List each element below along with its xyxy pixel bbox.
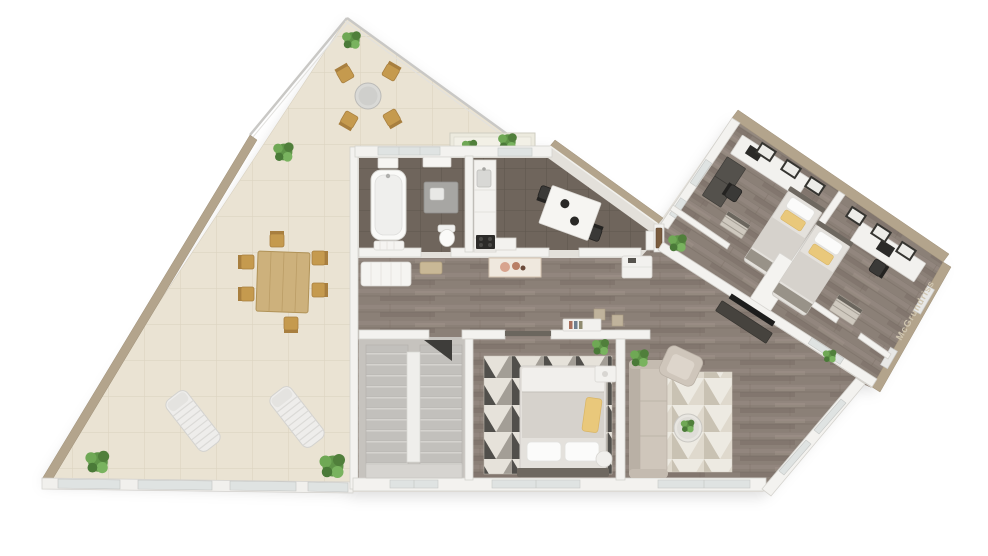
stair-landing xyxy=(366,464,462,478)
wall-hall-south-b xyxy=(462,330,505,339)
wall-pillar-2 xyxy=(612,315,623,326)
towel-radiator xyxy=(374,241,404,250)
boiler xyxy=(378,158,398,168)
pillow xyxy=(527,442,561,461)
wall-pillar-1 xyxy=(594,309,605,320)
nightstand xyxy=(595,366,616,382)
bathroom-window xyxy=(378,147,440,155)
staircase xyxy=(366,340,462,478)
wall-west xyxy=(350,147,358,489)
wall-bath-kitchen-divider xyxy=(465,156,473,252)
outdoor-dining-chair xyxy=(312,283,328,297)
entrance-shoe-cabinet xyxy=(622,256,652,278)
bistro-table-top xyxy=(359,87,378,106)
bedside-stool xyxy=(596,451,612,467)
living-room-plant xyxy=(630,349,649,367)
wall-bedroom-living-divider xyxy=(616,339,625,480)
wall-stair-bedroom-divider xyxy=(465,339,473,480)
headboard xyxy=(517,468,609,477)
wall-kitchen-east-stub xyxy=(646,231,654,250)
terrace-plant-bottom-right xyxy=(320,454,346,478)
terrace-bottom-window-1 xyxy=(58,479,120,489)
balcony-door xyxy=(498,148,532,156)
hallway-sideboard xyxy=(563,319,601,331)
wall-hall-south-a xyxy=(359,330,429,339)
outdoor-dining-chair xyxy=(238,287,254,301)
hallway-basket xyxy=(420,262,442,274)
wing-hallway-plant xyxy=(823,350,837,363)
hanging-plant-apex xyxy=(342,31,361,49)
outdoor-dining-chair xyxy=(312,251,328,265)
terrace-bottom-window-4 xyxy=(308,482,348,492)
floor-plan-svg: McGrundriss xyxy=(0,0,988,556)
terrace-plant-bottom-left xyxy=(85,451,109,473)
outdoor-dining-chair xyxy=(284,317,298,333)
stair-flight-right xyxy=(420,345,462,465)
terrace-bottom-window-2 xyxy=(138,480,212,490)
hallway-artwork xyxy=(489,258,541,277)
terrace-bottom-window-3 xyxy=(230,481,296,491)
coffee-table-plant xyxy=(681,420,695,433)
coffee-table xyxy=(674,414,702,442)
floor-plan-canvas: McGrundriss xyxy=(0,0,988,556)
hallway-radiator xyxy=(361,262,411,286)
stair-stringer-wall xyxy=(407,352,420,462)
cooktop xyxy=(476,235,495,249)
vanity-mirror-shelf xyxy=(423,157,451,167)
terrace-plant-left-rail xyxy=(273,142,293,161)
kitchen-sink xyxy=(477,167,491,187)
bathtub xyxy=(371,170,406,240)
outdoor-dining-chair xyxy=(270,231,284,247)
wing-hallway-plant xyxy=(668,234,687,252)
master-bedroom-sliding-door xyxy=(505,331,551,336)
outdoor-dining-chair xyxy=(238,255,254,269)
bathroom-vanity xyxy=(424,182,458,213)
master-bedroom-plant xyxy=(592,339,609,355)
pillow xyxy=(565,442,599,461)
double-bed xyxy=(517,366,609,477)
master-bedroom xyxy=(484,339,616,477)
sofa xyxy=(629,360,668,478)
stair-flight-left xyxy=(366,345,408,477)
